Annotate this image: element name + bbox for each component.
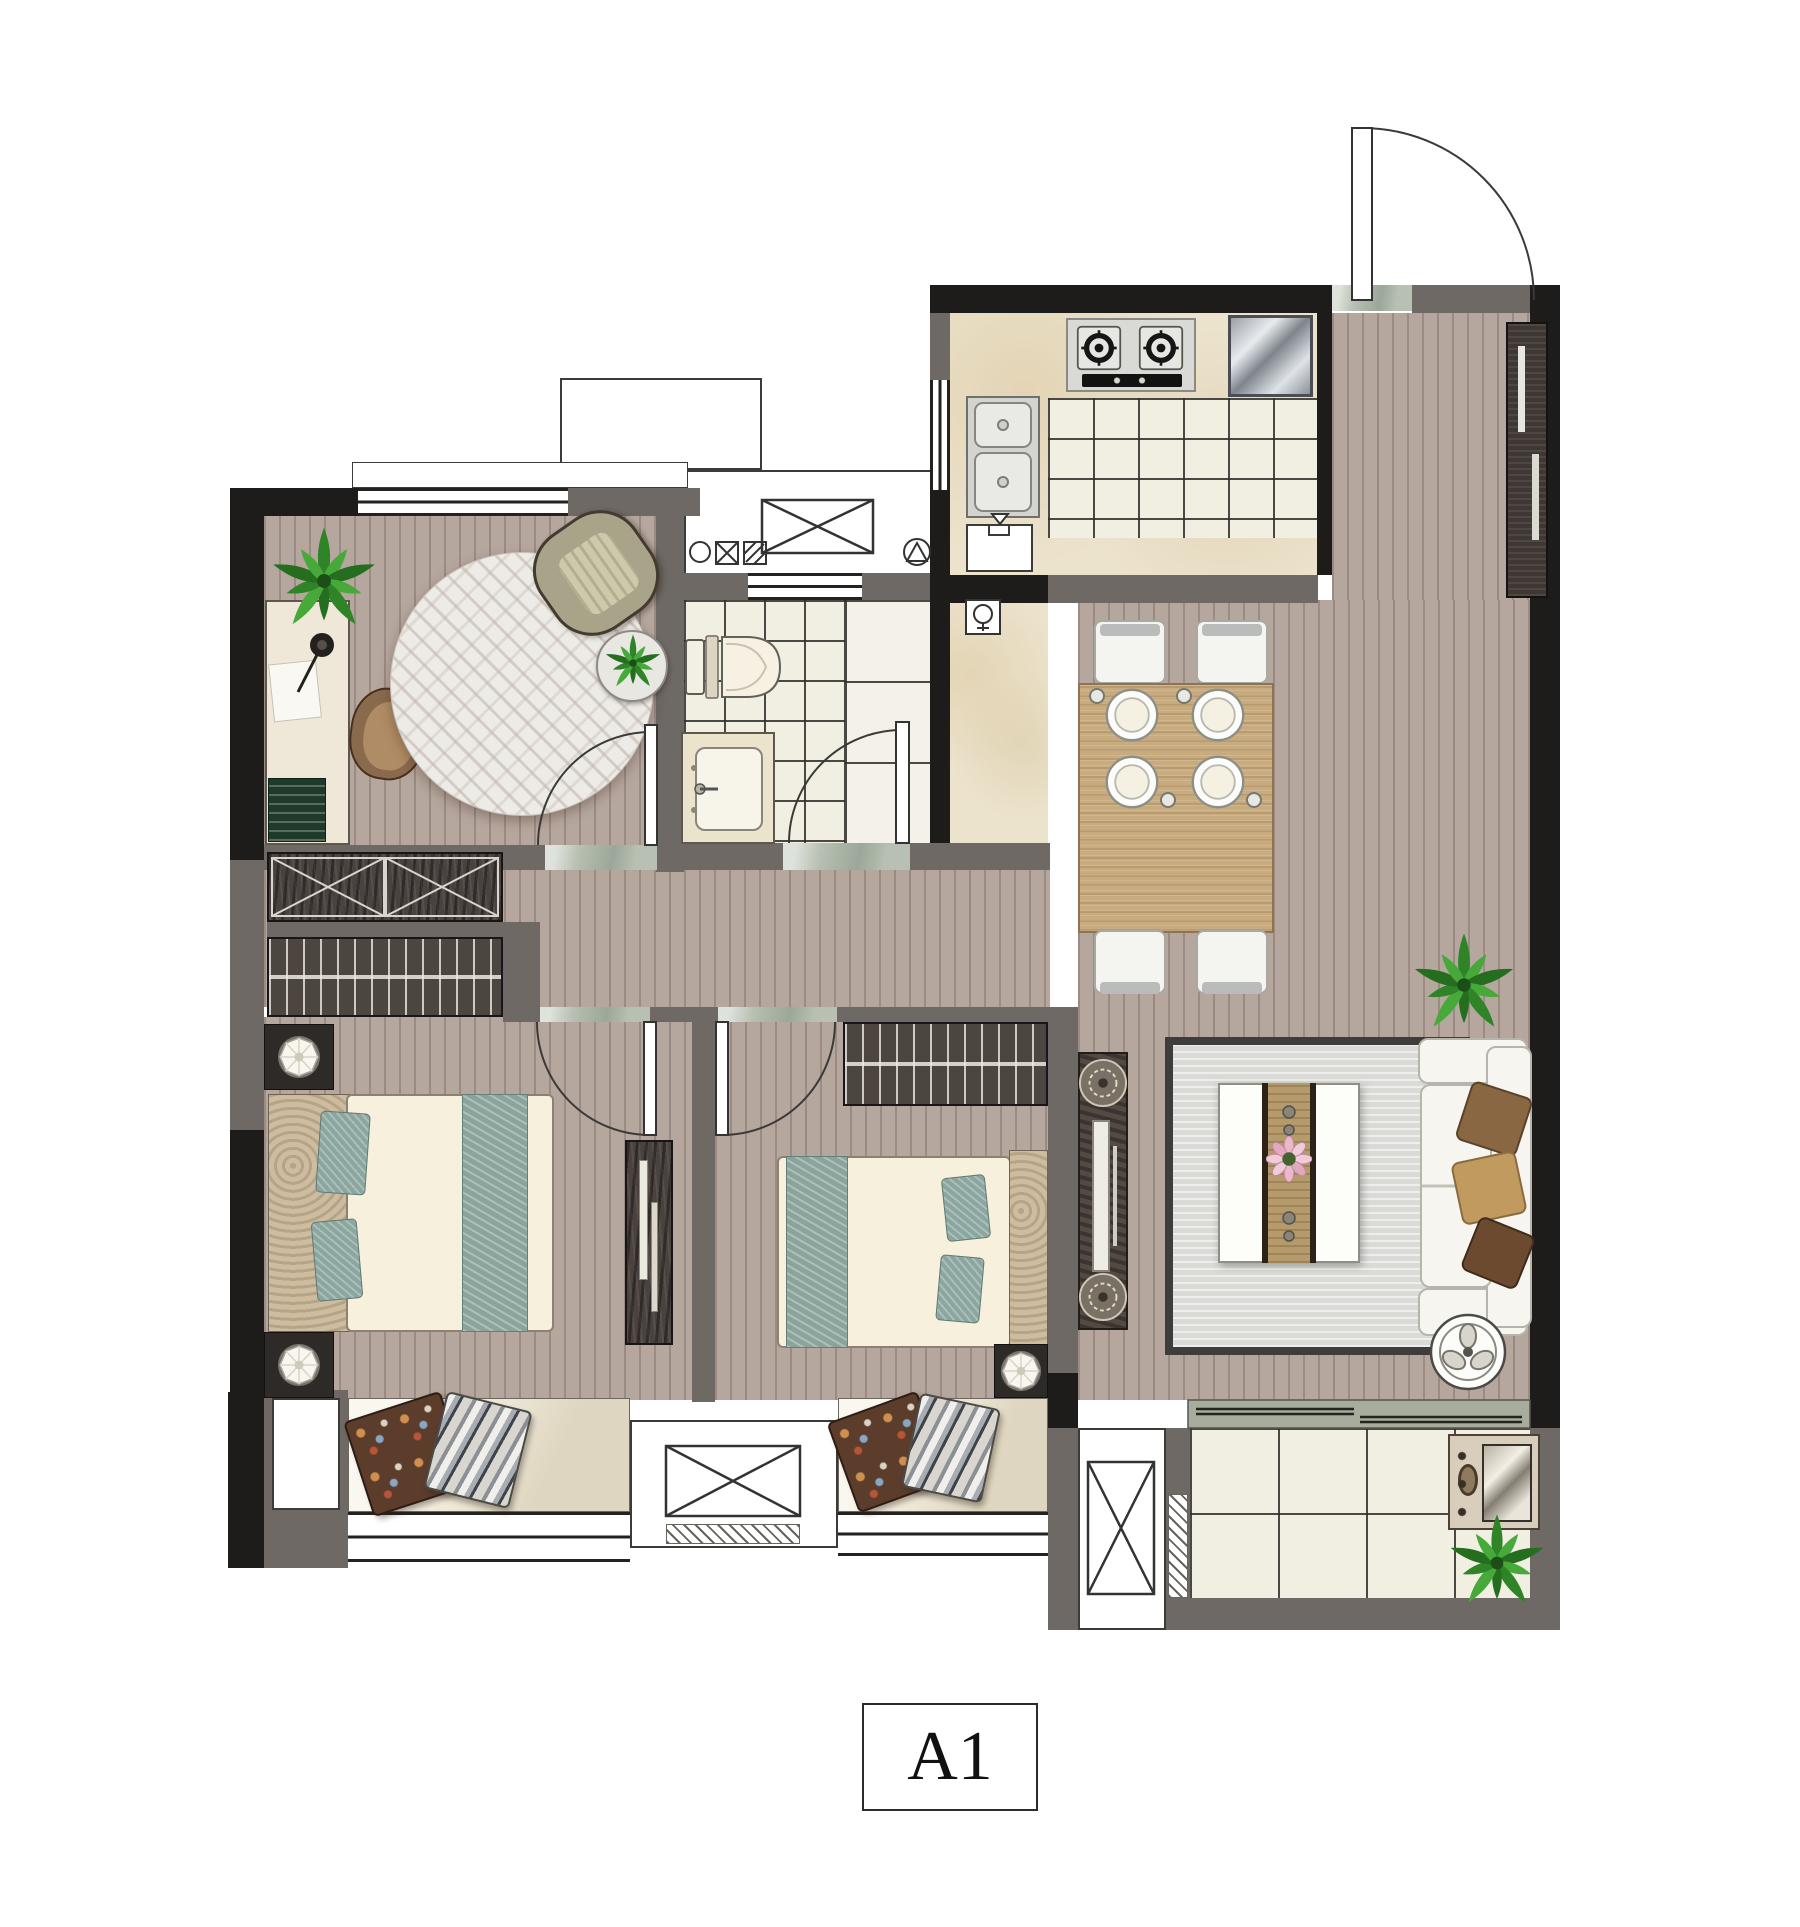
flower-centerpiece	[1266, 1136, 1312, 1182]
table-lamp	[278, 1344, 320, 1386]
toilet	[686, 636, 780, 698]
bedroom-1-door-arc	[537, 1022, 650, 1135]
entry-door-leaf	[1352, 128, 1372, 300]
desk-lamp	[298, 633, 334, 692]
bedroom-2-door	[716, 1022, 835, 1135]
plate	[1193, 690, 1243, 740]
plan-label: A1	[862, 1703, 1038, 1811]
bedroom-2-door-leaf	[716, 1022, 728, 1135]
plate	[1193, 757, 1243, 807]
potted-plant	[1413, 933, 1515, 1030]
bathroom-door	[789, 722, 909, 843]
bathroom-door-arc	[789, 730, 902, 843]
potted-plant	[271, 528, 376, 628]
bedroom-1-door	[537, 1022, 656, 1135]
round-tray	[1431, 1315, 1505, 1389]
balcony-sliding-door	[1188, 1400, 1530, 1428]
entry-door-arc	[1362, 128, 1534, 300]
entry-door	[1352, 128, 1534, 300]
hall-cabinet-cross-panels	[272, 858, 498, 916]
potted-plant	[605, 634, 661, 688]
bedroom-2-door-arc	[722, 1022, 835, 1135]
study-door	[538, 725, 657, 845]
vanity-sink	[682, 733, 774, 843]
bedroom-1-door-leaf	[644, 1022, 656, 1135]
plate	[1107, 690, 1157, 740]
plan-label-text: A1	[907, 1717, 993, 1797]
duct-cross-box-top	[762, 500, 873, 553]
bathroom-door-leaf	[896, 722, 909, 843]
decor-medallion	[1080, 1274, 1126, 1320]
sink-drain-triangle	[992, 514, 1008, 524]
ac-platform-cross-box	[666, 1446, 800, 1516]
decor-medallion	[1080, 1060, 1126, 1106]
floor-plan-canvas: A1	[0, 0, 1800, 1927]
stove-burner	[1140, 327, 1182, 369]
potted-plant	[1449, 1514, 1545, 1605]
table-lamp	[278, 1036, 320, 1078]
stove-burner	[1078, 327, 1120, 369]
duct-cross-box-bottom	[1088, 1462, 1154, 1594]
study-door-arc	[538, 732, 651, 845]
study-door-leaf	[645, 725, 657, 845]
water-heater	[966, 600, 1000, 634]
table-lamp	[1001, 1351, 1041, 1391]
plan-linework-overlay	[0, 0, 1800, 1927]
plate	[1107, 757, 1157, 807]
